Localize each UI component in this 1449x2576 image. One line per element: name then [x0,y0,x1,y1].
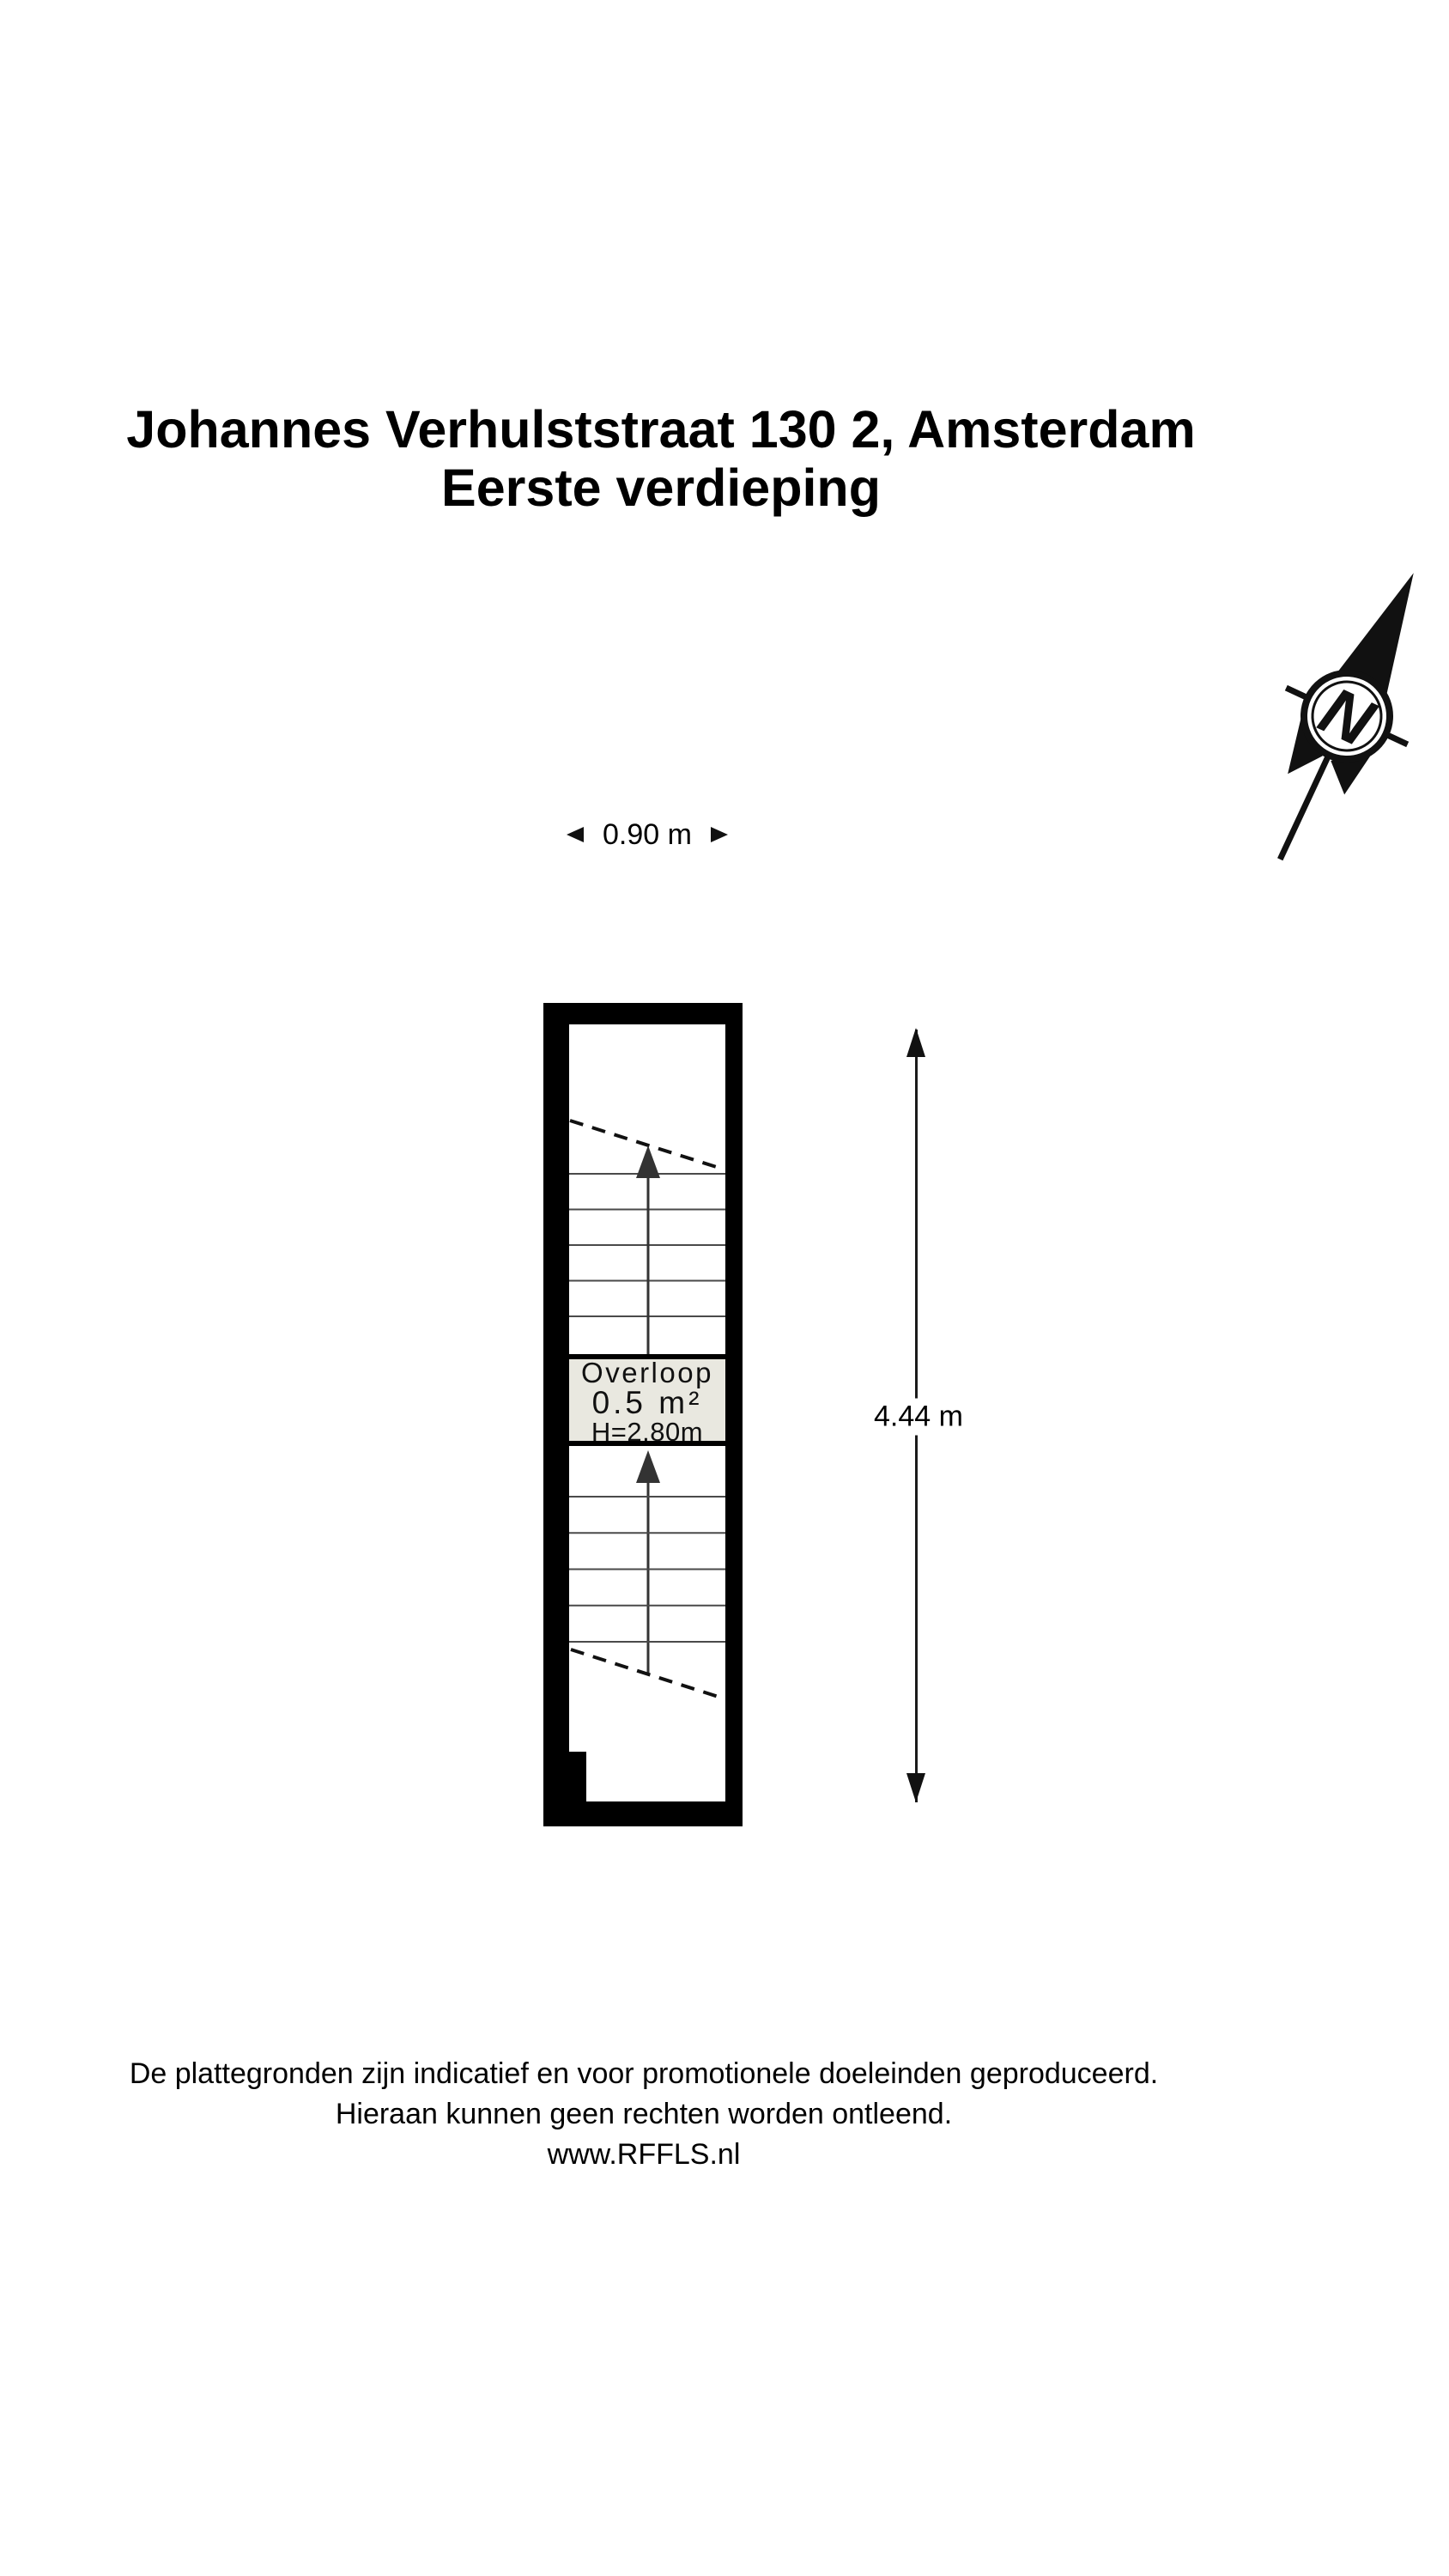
dimension-arrow-up-icon [906,1028,925,1057]
disclaimer-line: De plattegronden zijn indicatief en voor… [130,2054,1158,2094]
room-name-label: Overloop [581,1357,713,1388]
room-ceiling-height-label: H=2.80m [591,1417,703,1447]
disclaimer-line: Hieraan kunnen geen rechten worden ontle… [130,2094,1158,2135]
dimension-arrow-left-icon [567,827,584,842]
wall-notch [569,1752,586,1801]
room-area-label: 0.5 m² [592,1385,703,1420]
floorplan-page: Johannes Verhulststraat 130 2, Amsterdam… [0,0,1449,2576]
compass-north-icon: N [1252,536,1441,896]
page-title-floor: Eerste verdieping [126,459,1195,517]
page-title: Johannes Verhulststraat 130 2, Amsterdam… [126,400,1195,517]
dimension-arrow-right-icon [711,827,728,842]
height-dimension-label: 4.44 m [864,1399,973,1436]
dimension-arrow-down-icon [906,1773,925,1802]
width-dimension: 0.90 m [567,817,728,852]
page-title-address: Johannes Verhulststraat 130 2, Amsterdam [126,400,1195,459]
disclaimer: De plattegronden zijn indicatief en voor… [130,2054,1158,2175]
website-link: www.RFFLS.nl [130,2135,1158,2175]
compass-south-line [1280,754,1329,860]
width-dimension-label: 0.90 m [603,818,692,852]
floorplan-drawing: Overloop 0.5 m² H=2.80m [543,1003,743,1826]
